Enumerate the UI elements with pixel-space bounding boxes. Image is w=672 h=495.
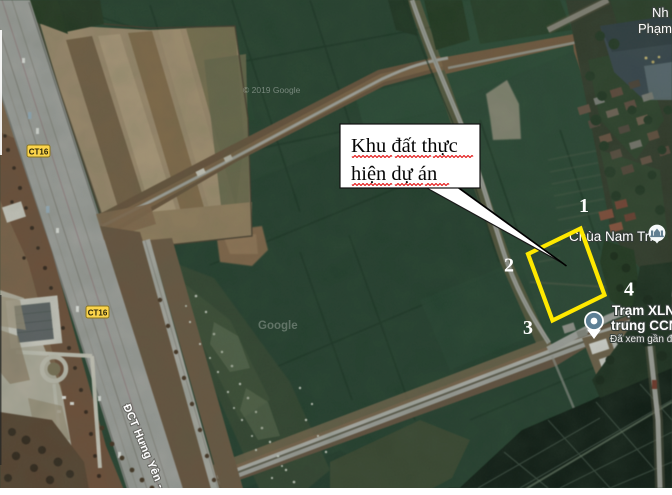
svg-text:Nh: Nh: [652, 5, 669, 20]
svg-text:Phạm: Phạm: [638, 21, 672, 36]
svg-text:Khu đất thực: Khu đất thực: [351, 135, 458, 157]
svg-text:Đã xem gần đâ: Đã xem gần đâ: [610, 333, 672, 345]
svg-text:CT16: CT16: [29, 148, 49, 157]
svg-text:CT16: CT16: [88, 309, 108, 318]
svg-text:trung CCN C: trung CCN C: [611, 318, 672, 333]
svg-text:1: 1: [579, 195, 589, 217]
svg-text:Trạm XLNT: Trạm XLNT: [612, 303, 672, 318]
svg-text:Google: Google: [258, 320, 298, 332]
svg-text:hiện dự án: hiện dự án: [351, 163, 437, 185]
svg-text:4: 4: [624, 279, 634, 301]
svg-text:© 2019 Google: © 2019 Google: [243, 85, 301, 95]
svg-text:2: 2: [504, 255, 514, 277]
svg-text:3: 3: [523, 317, 533, 339]
